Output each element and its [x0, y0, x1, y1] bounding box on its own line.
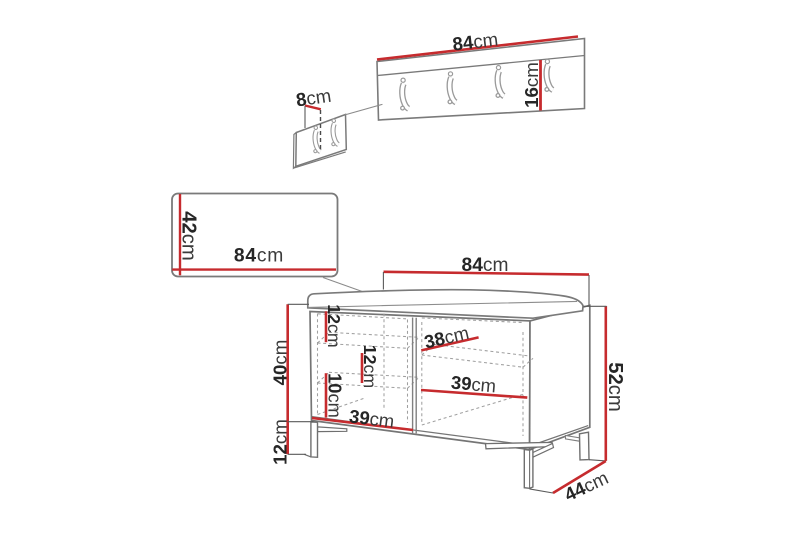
svg-text:10cm: 10cm [325, 373, 346, 418]
svg-text:52cm: 52cm [604, 362, 626, 412]
svg-text:84cm: 84cm [234, 246, 284, 267]
svg-text:12cm: 12cm [270, 419, 291, 465]
svg-text:12cm: 12cm [360, 345, 380, 388]
svg-text:84cm: 84cm [462, 255, 509, 276]
svg-text:42cm: 42cm [178, 211, 200, 261]
svg-text:8cm: 8cm [295, 85, 333, 111]
svg-text:39cm: 39cm [450, 372, 497, 397]
svg-text:12cm: 12cm [324, 304, 344, 347]
svg-text:40cm: 40cm [270, 340, 291, 386]
svg-text:16cm: 16cm [521, 62, 542, 108]
svg-text:39cm: 39cm [348, 405, 395, 431]
